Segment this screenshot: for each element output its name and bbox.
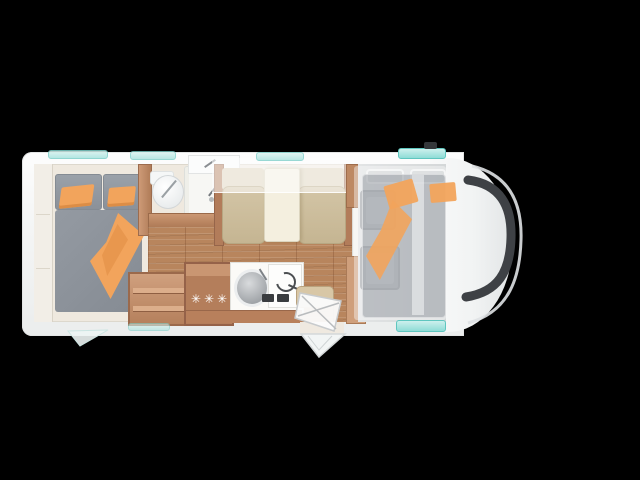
floorplan-scene: ✳✳✳ <box>0 0 640 480</box>
overlay-shapes <box>0 0 640 480</box>
rear-hatch-open <box>68 330 108 346</box>
windshield <box>466 180 511 297</box>
